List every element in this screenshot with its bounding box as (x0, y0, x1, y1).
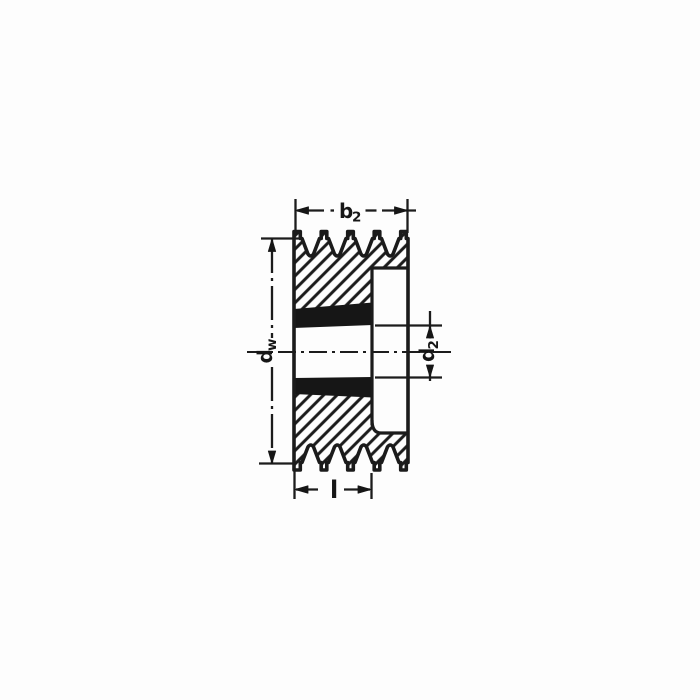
b2-arrow-left (296, 207, 309, 214)
d2-arrow-top (426, 326, 433, 338)
pulley-technical-drawing: b 2 d w d 2 l (0, 0, 700, 700)
keyway-band-lower (294, 378, 372, 398)
dw-label-sub: w (264, 339, 280, 351)
b2-arrow-right (395, 207, 408, 214)
dw-arrow-bottom (268, 451, 275, 464)
hub-recess-lines (372, 268, 408, 433)
bushing-bands (294, 303, 372, 397)
drawing-canvas: b 2 d w d 2 l (0, 0, 700, 700)
d2-label-sub: 2 (426, 340, 442, 349)
l-arrow-right (358, 486, 371, 493)
dimension-b2: b 2 (296, 199, 417, 233)
dw-arrow-top (268, 239, 275, 252)
recess-step-bottom (372, 420, 408, 433)
d2-arrow-bottom (426, 365, 433, 377)
b2-label-sub: 2 (352, 210, 361, 226)
l-arrow-left (295, 486, 308, 493)
rim-section-top (294, 232, 408, 310)
l-label: l (330, 476, 338, 504)
dimension-l: l (295, 470, 372, 504)
